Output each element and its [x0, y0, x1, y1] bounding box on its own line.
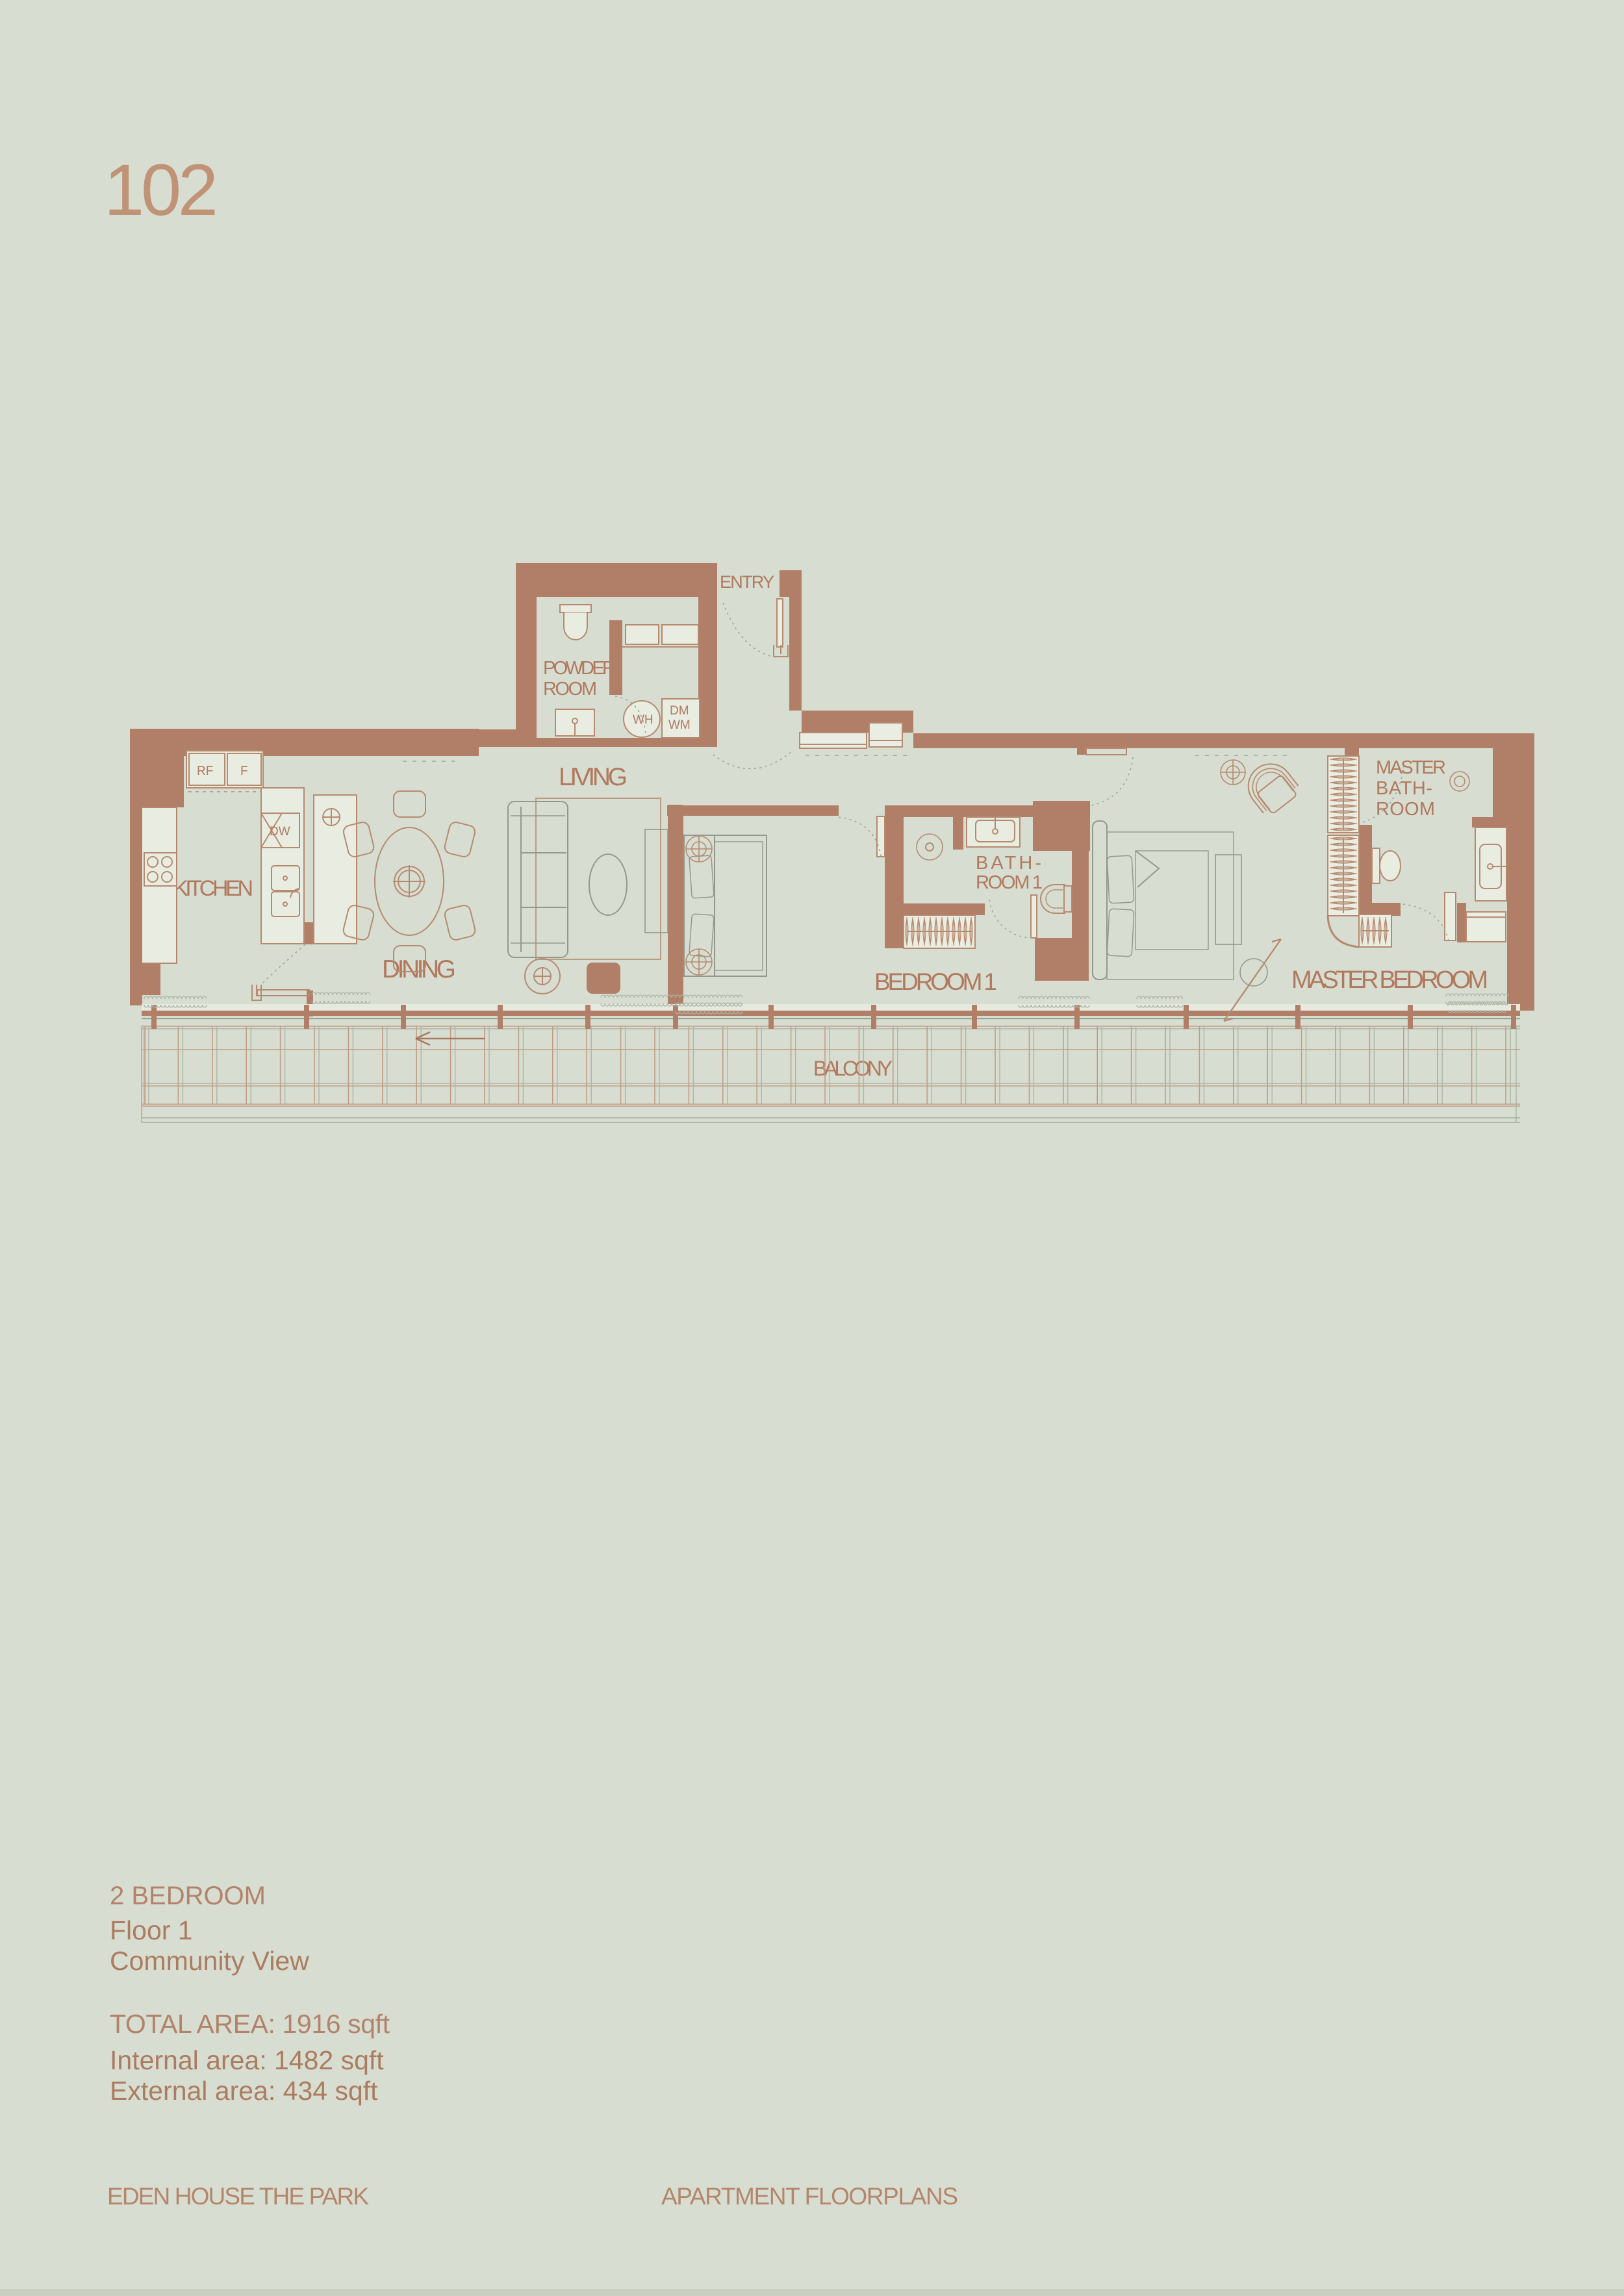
svg-text:BATH-: BATH- [1376, 778, 1432, 799]
svg-text:ENTRY: ENTRY [720, 572, 774, 592]
svg-text:Internal area: 1482 sqft: Internal area: 1482 sqft [110, 2045, 384, 2075]
svg-text:POWDER: POWDER [543, 658, 616, 679]
svg-text:APARTMENT FLOORPLANS: APARTMENT FLOORPLANS [661, 2183, 958, 2210]
svg-text:ROOM: ROOM [1376, 799, 1435, 820]
svg-text:BEDROOM 1: BEDROOM 1 [874, 968, 997, 995]
svg-text:TOTAL AREA: 1916 sqft: TOTAL AREA: 1916 sqft [110, 2009, 390, 2039]
svg-text:KITCHEN: KITCHEN [173, 876, 253, 901]
svg-text:External area: 434 sqft: External area: 434 sqft [110, 2076, 378, 2106]
svg-text:ROOM 1: ROOM 1 [976, 872, 1043, 893]
svg-text:MASTER BEDROOM: MASTER BEDROOM [1291, 966, 1488, 994]
svg-text:Floor 1: Floor 1 [110, 1915, 193, 1945]
svg-text:ROOM: ROOM [543, 679, 597, 700]
svg-text:Community View: Community View [110, 1946, 309, 1976]
svg-text:RF: RF [197, 764, 213, 778]
svg-text:LIVING: LIVING [559, 763, 628, 791]
svg-text:MASTER: MASTER [1376, 757, 1446, 778]
svg-text:WM: WM [668, 718, 691, 732]
svg-text:DW: DW [270, 825, 290, 839]
svg-text:F: F [240, 764, 248, 778]
svg-text:DM: DM [670, 704, 689, 718]
svg-text:EDEN HOUSE THE PARK: EDEN HOUSE THE PARK [107, 2183, 369, 2210]
svg-text:102: 102 [104, 149, 218, 231]
svg-text:WH: WH [633, 713, 653, 727]
svg-text:BATH-: BATH- [976, 853, 1041, 874]
svg-text:2 BEDROOM: 2 BEDROOM [110, 1882, 266, 1910]
